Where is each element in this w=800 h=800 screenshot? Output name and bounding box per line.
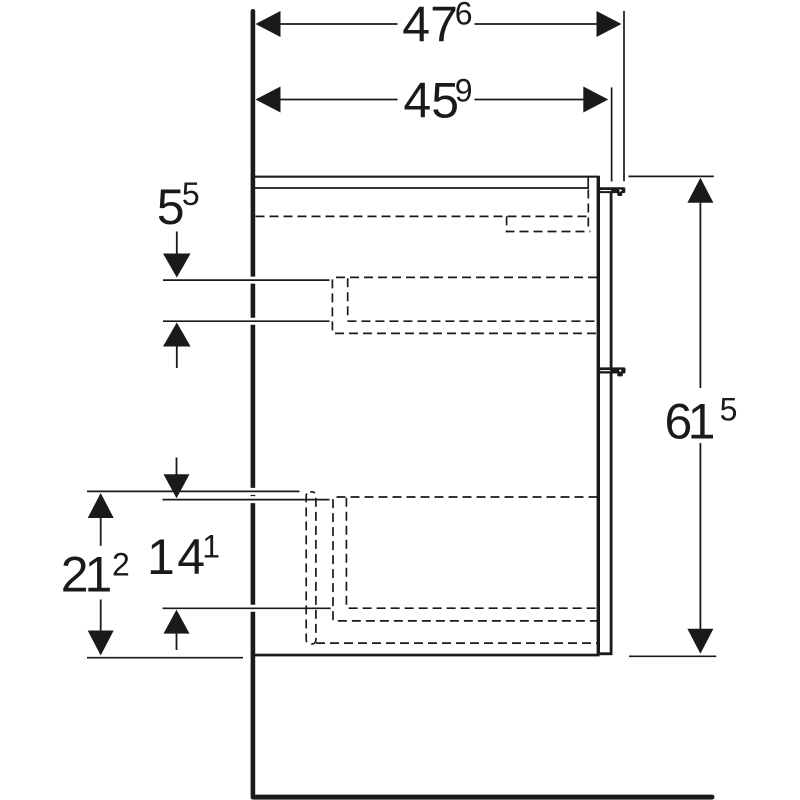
svg-text:61: 61	[665, 394, 714, 450]
svg-text:5: 5	[157, 179, 185, 235]
svg-text:21: 21	[61, 547, 111, 603]
svg-text:1: 1	[202, 529, 220, 565]
svg-text:9: 9	[455, 72, 473, 108]
svg-text:47: 47	[402, 0, 458, 53]
svg-text:45: 45	[403, 73, 459, 129]
svg-text:2: 2	[112, 547, 130, 583]
svg-text:5: 5	[720, 392, 738, 428]
svg-text:14: 14	[147, 529, 208, 585]
svg-text:6: 6	[455, 0, 473, 32]
svg-text:5: 5	[182, 176, 200, 212]
